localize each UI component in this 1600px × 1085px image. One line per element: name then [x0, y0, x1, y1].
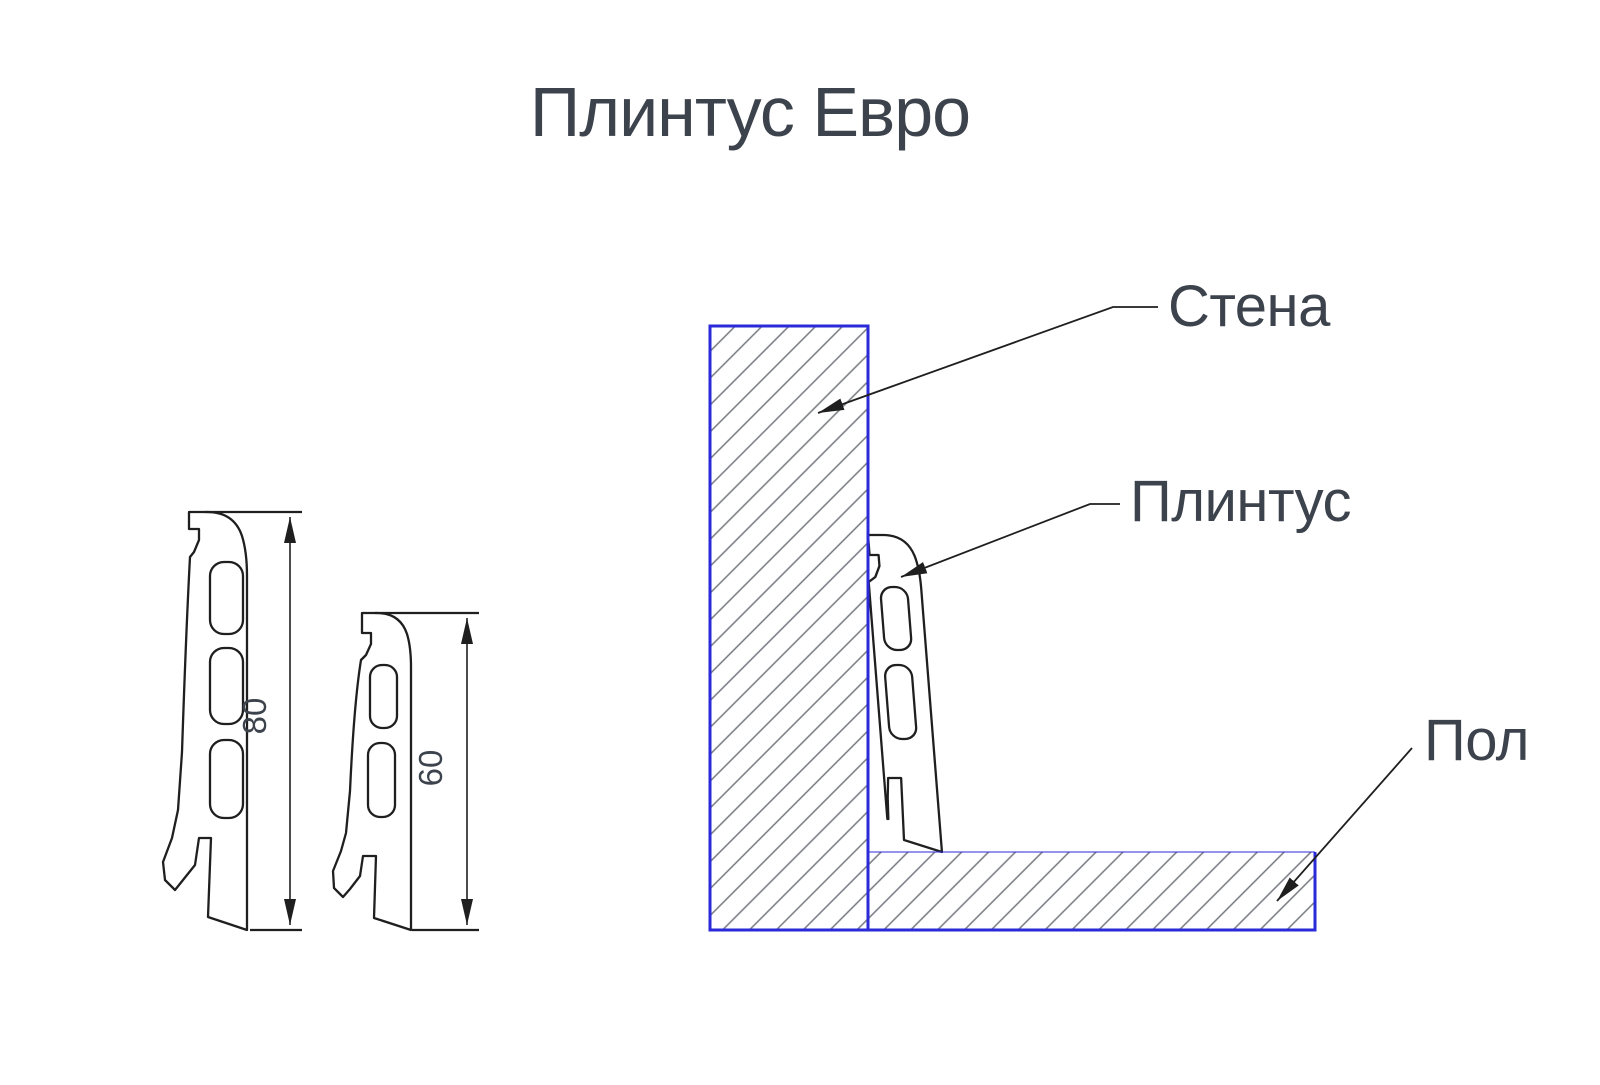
- page-title: Плинтус Евро: [530, 73, 970, 151]
- skirting-leader-arrow: [901, 504, 1120, 577]
- skirting-label: Плинтус: [1130, 469, 1351, 534]
- profile-80-drawing: [163, 512, 247, 930]
- skirting-diagram: Плинтус Евро 80 60: [0, 0, 1600, 1085]
- callout-wall: Стена: [818, 274, 1331, 413]
- installed-skirting: [865, 535, 942, 852]
- installed-skirting-slot: [884, 665, 917, 739]
- profile-60-slot: [368, 743, 395, 817]
- profile-60-slot: [370, 665, 397, 728]
- profile-80-slot: [210, 562, 243, 634]
- technical-drawing-canvas: Плинтус Евро 80 60: [0, 0, 1600, 1085]
- wall-label: Стена: [1168, 274, 1331, 339]
- floor-label: Пол: [1424, 708, 1529, 773]
- dimension-value-60: 60: [412, 750, 449, 787]
- dimension-value-80: 80: [236, 698, 273, 735]
- floor-leader-arrow: [1277, 748, 1412, 901]
- installed-skirting-slot: [880, 587, 912, 650]
- installation-view: [710, 326, 1315, 930]
- floor-hatch: [868, 852, 1315, 930]
- profile-60-drawing: [333, 613, 411, 930]
- profile-80-slot: [210, 740, 243, 818]
- callout-skirting: Плинтус: [901, 469, 1351, 577]
- wall-hatch: [710, 326, 868, 930]
